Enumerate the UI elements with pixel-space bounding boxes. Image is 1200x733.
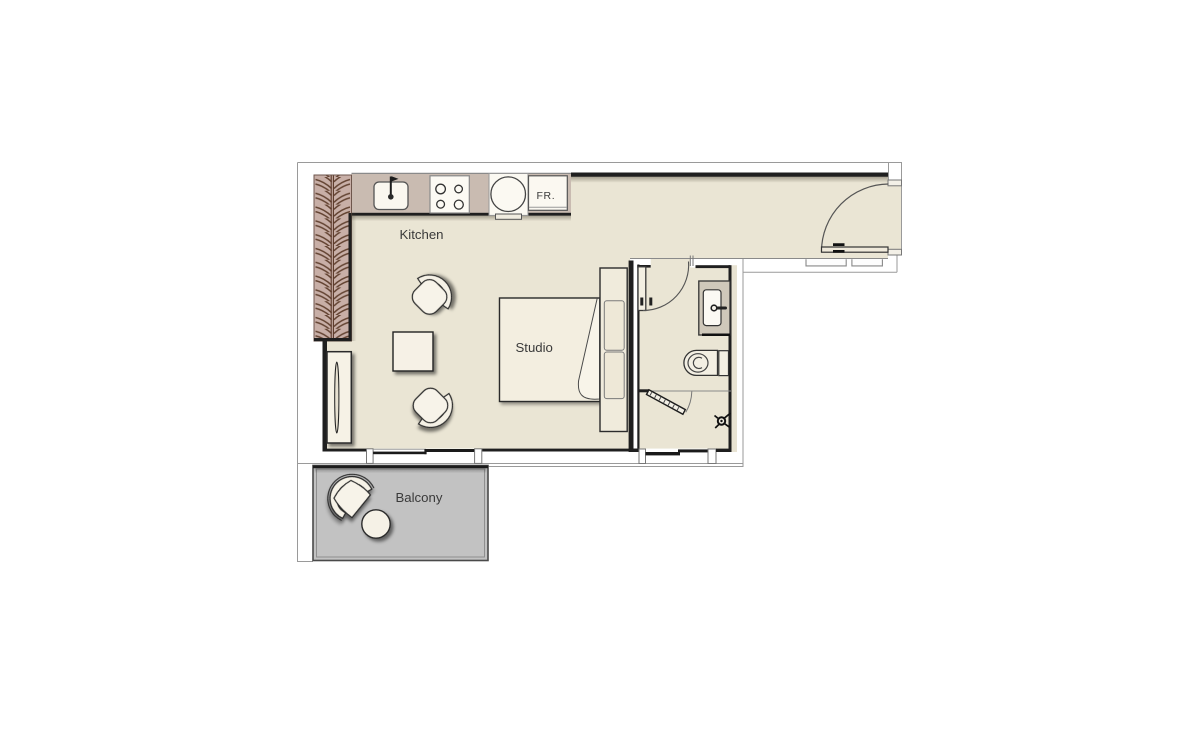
svg-text:Kitchen: Kitchen [400,227,444,242]
svg-text:Balcony: Balcony [396,490,443,505]
svg-text:Studio: Studio [516,340,553,355]
svg-text:FR.: FR. [537,190,556,202]
